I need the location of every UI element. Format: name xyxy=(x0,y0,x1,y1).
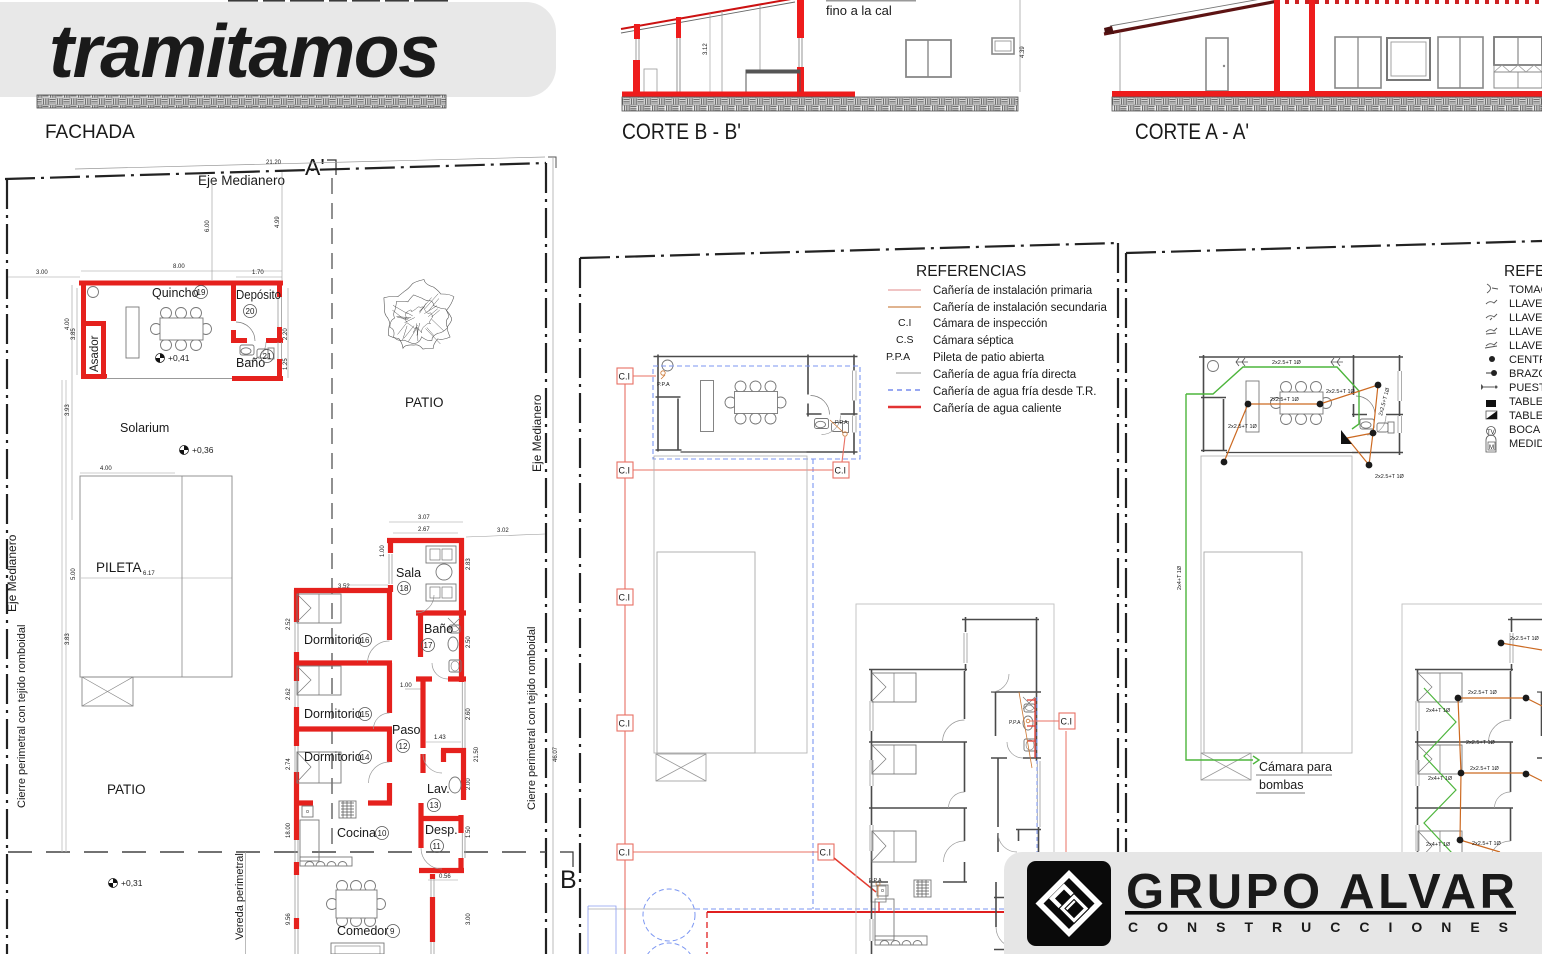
svg-text:Cañería de instalación secunda: Cañería de instalación secundaria xyxy=(933,302,1107,314)
svg-text:19: 19 xyxy=(197,288,206,297)
svg-text:3.00: 3.00 xyxy=(36,270,48,276)
svg-text:20: 20 xyxy=(246,307,255,316)
svg-text:21: 21 xyxy=(263,352,272,361)
svg-text:TOMACORRIENTE: TOMACORRIENTE xyxy=(1509,284,1542,296)
svg-text:Cámara para: Cámara para xyxy=(1259,760,1332,774)
svg-text:REFERENCIAS: REFERENCIAS xyxy=(1504,263,1542,280)
svg-text:PILETA: PILETA xyxy=(96,560,142,575)
svg-text:+0,41: +0,41 xyxy=(168,353,190,363)
svg-text:2x2.5+T 1Ø: 2x2.5+T 1Ø xyxy=(1378,386,1391,416)
svg-text:B: B xyxy=(560,866,577,894)
svg-text:P.P.A: P.P.A xyxy=(1009,720,1021,726)
svg-text:2x2.5+T 1Ø: 2x2.5+T 1Ø xyxy=(1272,360,1302,366)
svg-text:Cañería de agua fría directa: Cañería de agua fría directa xyxy=(933,369,1077,381)
svg-text:Eje Medianero: Eje Medianero xyxy=(5,534,19,612)
svg-text:CENTRO: CENTRO xyxy=(1509,354,1542,366)
svg-text:Cañería de agua caliente: Cañería de agua caliente xyxy=(933,403,1062,415)
svg-text:LLAVE DE DOS PUNTOS: LLAVE DE DOS PUNTOS xyxy=(1509,312,1542,324)
svg-text:3.00: 3.00 xyxy=(466,913,472,925)
svg-text:4.00: 4.00 xyxy=(100,466,112,472)
svg-text:2.60: 2.60 xyxy=(466,708,472,720)
svg-text:18: 18 xyxy=(400,584,409,593)
svg-text:46.07: 46.07 xyxy=(553,746,559,762)
svg-text:Eje Medianero: Eje Medianero xyxy=(530,394,544,472)
svg-text:2x2.5+T 1Ø: 2x2.5+T 1Ø xyxy=(1470,766,1500,772)
svg-text:Lav.: Lav. xyxy=(427,782,450,796)
svg-text:3.85: 3.85 xyxy=(71,328,77,340)
svg-text:Quincho: Quincho xyxy=(152,286,199,300)
svg-text:1.50: 1.50 xyxy=(466,826,472,838)
svg-text:CONSTRUCCIONES: CONSTRUCCIONES xyxy=(1128,919,1527,935)
svg-text:C.I: C.I xyxy=(619,719,631,729)
svg-text:3.12: 3.12 xyxy=(703,43,709,55)
svg-text:Cañería de agua fría desde T.R: Cañería de agua fría desde T.R. xyxy=(933,386,1096,398)
svg-text:LLAVE DE UN PUNTO: LLAVE DE UN PUNTO xyxy=(1509,298,1542,310)
svg-text:0.56: 0.56 xyxy=(439,874,451,880)
svg-text:2x2.5+T 1Ø: 2x2.5+T 1Ø xyxy=(1270,397,1300,403)
svg-text:2.67: 2.67 xyxy=(418,527,430,533)
svg-text:2.52: 2.52 xyxy=(286,618,292,630)
svg-text:Dormitorio: Dormitorio xyxy=(304,707,362,721)
svg-text:Cierre perimetral con tejido r: Cierre perimetral con tejido romboidal xyxy=(16,625,28,808)
svg-text:Asador: Asador xyxy=(89,335,101,372)
svg-text:TABLERO GENERAL: TABLERO GENERAL xyxy=(1509,396,1542,408)
svg-text:Cocina: Cocina xyxy=(337,826,376,840)
svg-text:3.93: 3.93 xyxy=(65,404,71,416)
svg-text:2.83: 2.83 xyxy=(466,558,472,570)
svg-text:PATIO: PATIO xyxy=(405,395,444,410)
svg-text:Cámara de inspección: Cámara de inspección xyxy=(933,318,1047,330)
svg-text:2x4+T 1Ø: 2x4+T 1Ø xyxy=(1426,842,1451,848)
svg-text:GRUPO ALVAR: GRUPO ALVAR xyxy=(1126,865,1519,919)
svg-text:Baño: Baño xyxy=(424,622,453,636)
svg-text:Comedor: Comedor xyxy=(337,924,388,938)
svg-text:BRAZO: BRAZO xyxy=(1509,368,1542,380)
svg-text:Depósito: Depósito xyxy=(236,288,281,302)
svg-text:FACHADA: FACHADA xyxy=(45,122,135,143)
svg-text:15: 15 xyxy=(361,710,370,719)
svg-text:Dormitorio: Dormitorio xyxy=(304,633,362,647)
svg-text:Cierre perimetral con tejido r: Cierre perimetral con tejido romboidal xyxy=(526,627,538,810)
svg-text:4.00: 4.00 xyxy=(65,318,71,330)
svg-text:2.00: 2.00 xyxy=(466,778,472,790)
svg-text:+0,31: +0,31 xyxy=(121,878,143,888)
svg-text:Cámara séptica: Cámara séptica xyxy=(933,335,1014,347)
svg-text:P.P.A: P.P.A xyxy=(835,420,848,426)
svg-text:9: 9 xyxy=(390,927,395,936)
svg-text:4.99: 4.99 xyxy=(275,216,281,228)
svg-text:2.62: 2.62 xyxy=(286,688,292,700)
svg-text:CORTE B - B': CORTE B - B' xyxy=(622,119,741,144)
svg-text:16: 16 xyxy=(361,636,370,645)
svg-text:C.I: C.I xyxy=(820,848,832,858)
svg-text:13: 13 xyxy=(430,801,439,810)
svg-text:C.I: C.I xyxy=(619,593,631,603)
svg-text:3.83: 3.83 xyxy=(65,633,71,645)
svg-text:TABLERO SECCIONAL: TABLERO SECCIONAL xyxy=(1509,410,1542,422)
svg-text:Vereda perimetral: Vereda perimetral xyxy=(234,853,246,940)
svg-text:A': A' xyxy=(305,154,325,180)
svg-text:2.50: 2.50 xyxy=(466,636,472,648)
svg-text:1.70: 1.70 xyxy=(252,270,264,276)
svg-text:1.25: 1.25 xyxy=(283,358,289,370)
svg-text:5.00: 5.00 xyxy=(71,568,77,580)
svg-text:11: 11 xyxy=(433,842,442,851)
svg-text:P.P.A: P.P.A xyxy=(657,382,670,388)
svg-text:6.17: 6.17 xyxy=(143,571,155,577)
svg-text:CORTE A - A': CORTE A - A' xyxy=(1135,119,1249,144)
svg-text:Desp.: Desp. xyxy=(425,823,458,837)
svg-text:C.I: C.I xyxy=(619,466,631,476)
svg-text:REFERENCIAS: REFERENCIAS xyxy=(916,263,1026,280)
svg-text:Sala: Sala xyxy=(396,566,421,580)
svg-text:1.00: 1.00 xyxy=(380,545,386,557)
svg-text:Pileta de patio abierta: Pileta de patio abierta xyxy=(933,352,1045,364)
svg-text:21.50: 21.50 xyxy=(474,746,480,762)
svg-text:2x2.5+T 1Ø: 2x2.5+T 1Ø xyxy=(1228,424,1258,430)
svg-text:PATIO: PATIO xyxy=(107,782,146,797)
svg-text:9.56: 9.56 xyxy=(286,913,292,925)
svg-text:Cañería de instalación primari: Cañería de instalación primaria xyxy=(933,285,1093,297)
svg-text:Solarium: Solarium xyxy=(120,421,169,435)
svg-text:2x2.5+T 1Ø: 2x2.5+T 1Ø xyxy=(1510,636,1540,642)
svg-text:Dormitorio: Dormitorio xyxy=(304,750,362,764)
svg-text:17: 17 xyxy=(424,641,433,650)
svg-text:MEDIDOR: MEDIDOR xyxy=(1509,438,1542,450)
svg-text:2.20: 2.20 xyxy=(283,328,289,340)
svg-text:bombas: bombas xyxy=(1259,778,1303,792)
svg-text:+0,36: +0,36 xyxy=(192,445,214,455)
svg-text:2x4+T 1Ø: 2x4+T 1Ø xyxy=(1426,708,1451,714)
svg-text:LLAVE DE COMBINACION: LLAVE DE COMBINACION xyxy=(1509,326,1542,338)
svg-text:fino a la cal: fino a la cal xyxy=(826,3,892,18)
svg-text:4.39: 4.39 xyxy=(1020,46,1026,58)
svg-text:2x4+T 1Ø: 2x4+T 1Ø xyxy=(1428,776,1453,782)
svg-text:2x2.5+T 1Ø: 2x2.5+T 1Ø xyxy=(1468,690,1498,696)
svg-text:2.74: 2.74 xyxy=(286,758,292,770)
svg-text:C.I: C.I xyxy=(1061,717,1073,727)
svg-text:8.00: 8.00 xyxy=(173,264,185,270)
svg-text:21.20: 21.20 xyxy=(266,160,282,166)
svg-text:10: 10 xyxy=(378,829,387,838)
svg-text:C.I: C.I xyxy=(898,317,911,329)
svg-text:P.P.A: P.P.A xyxy=(886,351,910,363)
svg-text:1.43: 1.43 xyxy=(434,735,446,741)
svg-text:18.00: 18.00 xyxy=(286,822,292,838)
svg-text:C.I: C.I xyxy=(835,466,847,476)
svg-text:3.02: 3.02 xyxy=(497,528,509,534)
svg-text:PUESTA A TIERRA: PUESTA A TIERRA xyxy=(1509,382,1542,394)
svg-text:C.I: C.I xyxy=(619,372,631,382)
svg-text:2x2.5+T 1Ø: 2x2.5+T 1Ø xyxy=(1466,740,1496,746)
svg-text:C.S: C.S xyxy=(896,334,914,346)
svg-text:Eje Medianero: Eje Medianero xyxy=(198,173,285,188)
svg-text:2x2.5+T 1Ø: 2x2.5+T 1Ø xyxy=(1472,841,1502,847)
svg-text:LLAVE DE CAMPANILLA: LLAVE DE CAMPANILLA xyxy=(1509,340,1542,352)
svg-text:6.00: 6.00 xyxy=(205,220,211,232)
svg-text:14: 14 xyxy=(361,753,370,762)
svg-text:2x2.5+T 1Ø: 2x2.5+T 1Ø xyxy=(1326,389,1356,395)
svg-text:BOCA TELEVISION: BOCA TELEVISION xyxy=(1509,424,1542,436)
svg-text:2x4+T 1Ø: 2x4+T 1Ø xyxy=(1177,565,1183,590)
svg-text:tramitamos: tramitamos xyxy=(49,9,438,93)
svg-text:2x2.5+T 1Ø: 2x2.5+T 1Ø xyxy=(1375,474,1405,480)
svg-text:C.I: C.I xyxy=(619,848,631,858)
svg-text:1.00: 1.00 xyxy=(400,683,412,689)
svg-text:M: M xyxy=(1489,445,1494,451)
svg-text:Paso: Paso xyxy=(392,723,421,737)
svg-text:12: 12 xyxy=(399,742,408,751)
svg-text:3.07: 3.07 xyxy=(418,515,430,521)
